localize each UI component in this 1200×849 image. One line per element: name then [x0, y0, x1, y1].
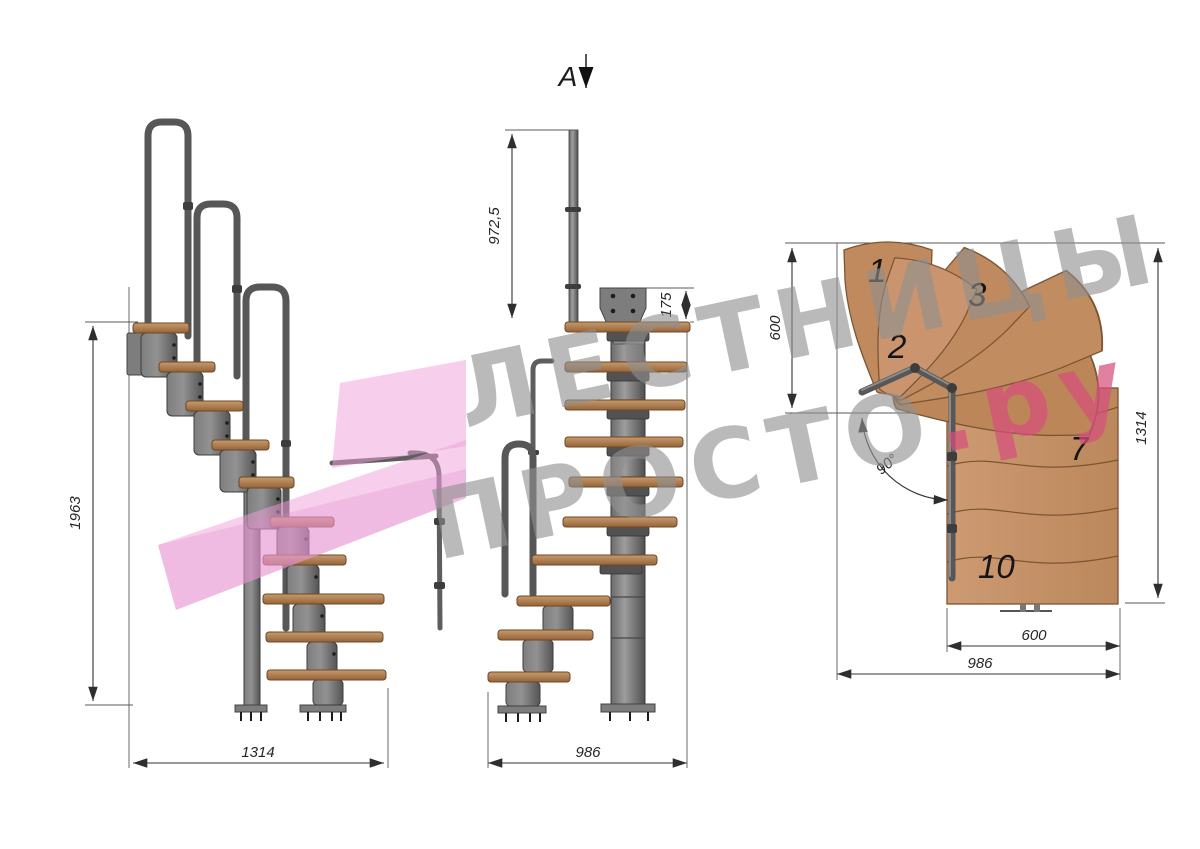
section-label: A	[557, 61, 578, 92]
base-plate	[498, 706, 546, 713]
step-tread	[263, 594, 384, 604]
step-tread	[267, 670, 386, 680]
step-module	[313, 680, 343, 705]
step-module	[523, 640, 553, 672]
step-tread	[488, 672, 570, 682]
tread-number-10: 10	[978, 548, 1015, 585]
step-module	[287, 565, 319, 598]
handrail-loop-1	[148, 122, 188, 336]
rail-collar	[183, 202, 193, 210]
step-tread	[239, 477, 294, 488]
rail-collar	[232, 285, 242, 293]
handrail-post	[569, 130, 578, 324]
step-tread	[517, 596, 610, 606]
step-tread	[186, 401, 243, 411]
step-tread	[212, 440, 269, 450]
step-tread	[159, 362, 215, 372]
handrail-loop-2	[197, 204, 237, 376]
rail-collar	[281, 440, 291, 447]
step-tread	[133, 323, 189, 333]
step-tread	[266, 632, 383, 642]
rail-collar	[565, 284, 581, 289]
base-plate	[235, 705, 267, 712]
rail-collar	[565, 207, 581, 212]
plan-base-mark	[1000, 604, 1052, 612]
staircase-drawing: 1963 1314 A	[0, 0, 1200, 849]
section-marker: A	[557, 54, 586, 92]
technical-drawing-canvas: 1963 1314 A	[0, 0, 1200, 849]
dim-plan-run-width: 600	[1021, 627, 1047, 644]
dim-handrail-height: 972,5	[486, 207, 503, 245]
base-plate	[300, 705, 346, 712]
dim-front-depth: 986	[575, 744, 601, 761]
step-module	[506, 682, 540, 706]
step-tread	[498, 630, 593, 640]
base-plate	[601, 704, 655, 712]
dim-side-total-height: 1963	[67, 496, 84, 530]
dim-side-total-length: 1314	[241, 744, 274, 761]
anchor-bolts	[241, 712, 341, 721]
rail-collar	[434, 582, 445, 589]
dim-plan-total-width: 986	[967, 655, 993, 672]
step-module	[543, 606, 573, 632]
